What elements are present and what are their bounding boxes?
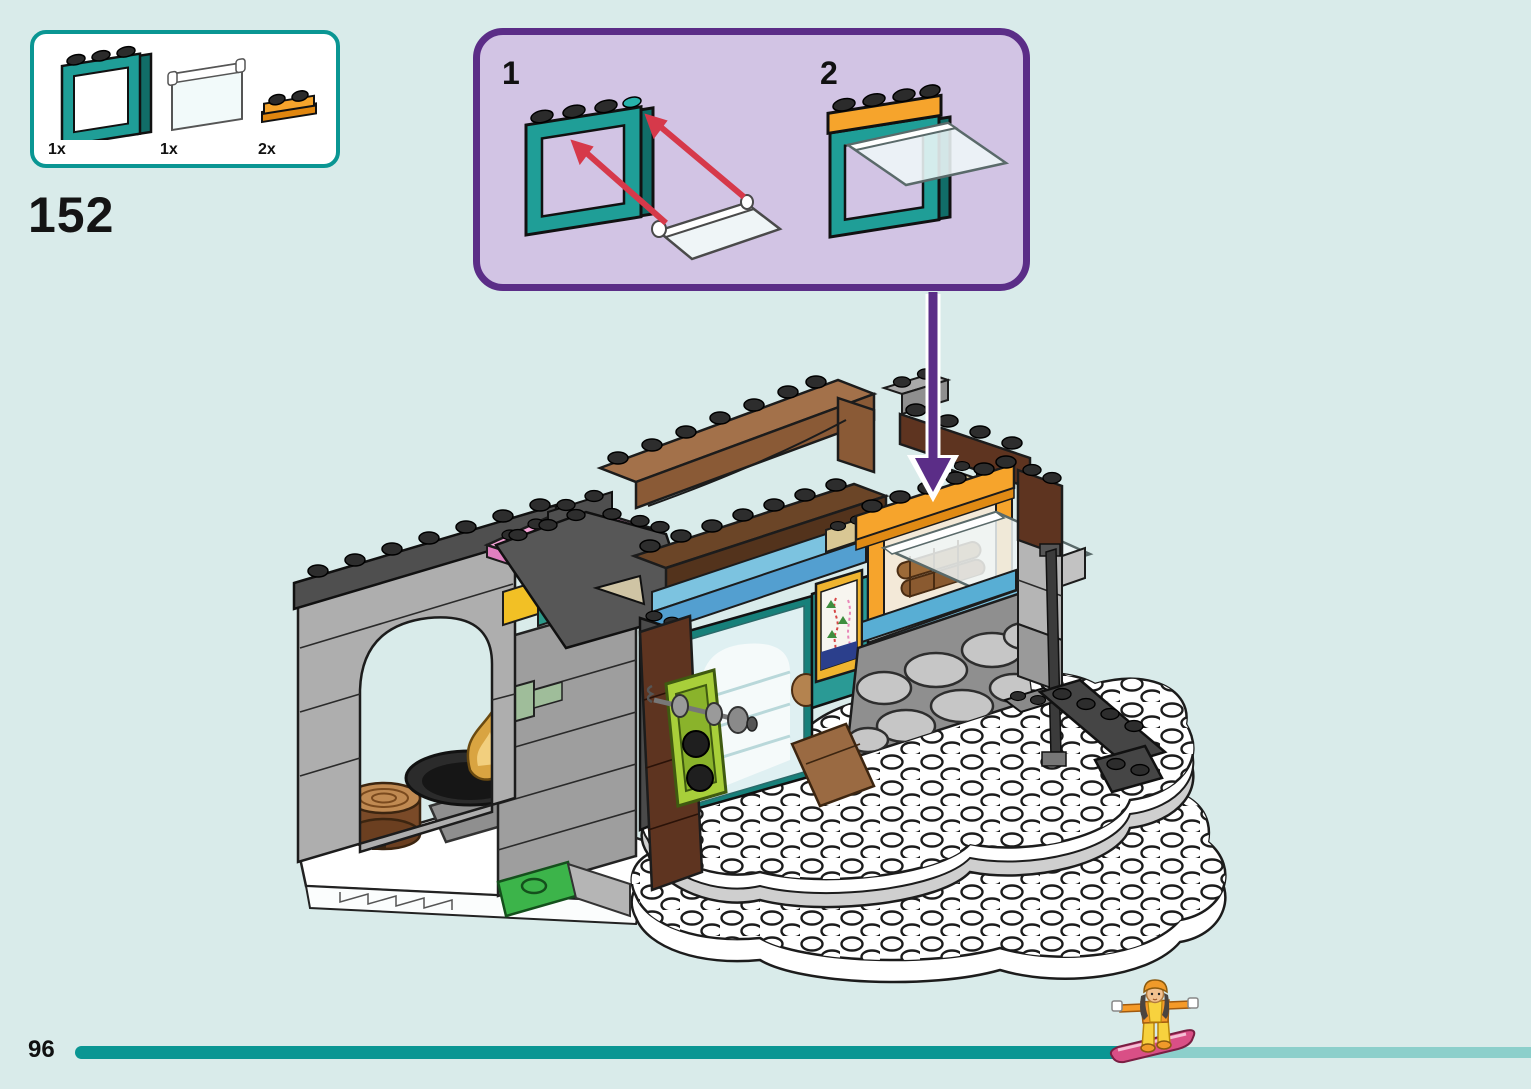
dark-step-plates	[1005, 680, 1165, 792]
lime-dumbbell-rack	[648, 670, 757, 806]
progress-bar-remaining	[1145, 1047, 1531, 1058]
interior-bits	[503, 574, 600, 626]
sand-green-tile	[534, 682, 562, 708]
window-pane-icon	[160, 40, 256, 140]
helmet	[1144, 980, 1167, 992]
green-brick	[498, 862, 630, 916]
dumbbell-bar	[654, 700, 748, 722]
brown-attic-beam	[600, 376, 874, 508]
dark-return-wall	[640, 611, 683, 830]
dark-brown-top-row	[900, 404, 1030, 512]
brown-pillar	[640, 616, 702, 890]
part-orange-plate: 2x	[258, 40, 322, 158]
open-window-pane	[884, 512, 1090, 590]
ski-map-poster	[816, 570, 862, 682]
page-number: 96	[28, 1036, 55, 1064]
part-window-frame: 1x	[48, 40, 158, 158]
blue-round-stud	[573, 551, 595, 565]
azure-window-sill	[862, 570, 1018, 656]
firewood-stack	[896, 540, 987, 600]
sand-green-tile	[502, 681, 534, 725]
orange-shop-window-open	[826, 456, 1090, 632]
glass-door	[678, 596, 820, 814]
window-frame-icon	[48, 40, 158, 140]
gray-clip	[1062, 548, 1085, 586]
dark-cap-row	[294, 505, 556, 609]
stone-arch-wall	[294, 499, 556, 862]
callout-pointer-arrow	[912, 292, 954, 496]
step-number: 152	[28, 186, 114, 244]
tan-brick	[826, 516, 868, 552]
fire-bowl-with-flame	[406, 712, 534, 842]
gray-top-brick	[884, 369, 948, 414]
front-brown-beam	[634, 479, 886, 588]
azure-lintel-rows	[652, 522, 866, 634]
blue-round-stud	[641, 557, 663, 571]
right-corner-pillar	[1018, 465, 1085, 692]
part-count: 1x	[48, 142, 66, 158]
black-railing-bar	[1040, 544, 1066, 766]
orange-plate-icon	[258, 40, 322, 140]
part-count: 1x	[160, 142, 178, 158]
interior-floor	[300, 796, 660, 924]
part-window-pane: 1x	[160, 40, 256, 158]
snow-baseplate-terraces	[632, 673, 1226, 982]
window-pane	[652, 195, 780, 259]
door-ramp	[792, 724, 874, 806]
part-count: 2x	[258, 142, 276, 158]
pink-roof-plate	[487, 505, 663, 584]
wood-door-handle	[792, 674, 820, 706]
stone-chimney	[498, 600, 636, 896]
substep-2-drawing	[800, 75, 1025, 280]
progress-bar-done	[75, 1046, 1145, 1059]
poster-wall	[812, 570, 868, 708]
wood-stump	[348, 783, 420, 850]
parts-panel: 1x 1x 2x	[30, 30, 340, 168]
orange-top-plates	[856, 464, 1014, 540]
tan-brick	[952, 470, 1010, 512]
window-frame	[526, 93, 653, 235]
substep-1-drawing	[498, 83, 788, 283]
cobblestone-wall	[846, 594, 1044, 760]
substep-callout: 1 2	[473, 28, 1030, 291]
dark-gable-plate	[496, 491, 692, 648]
